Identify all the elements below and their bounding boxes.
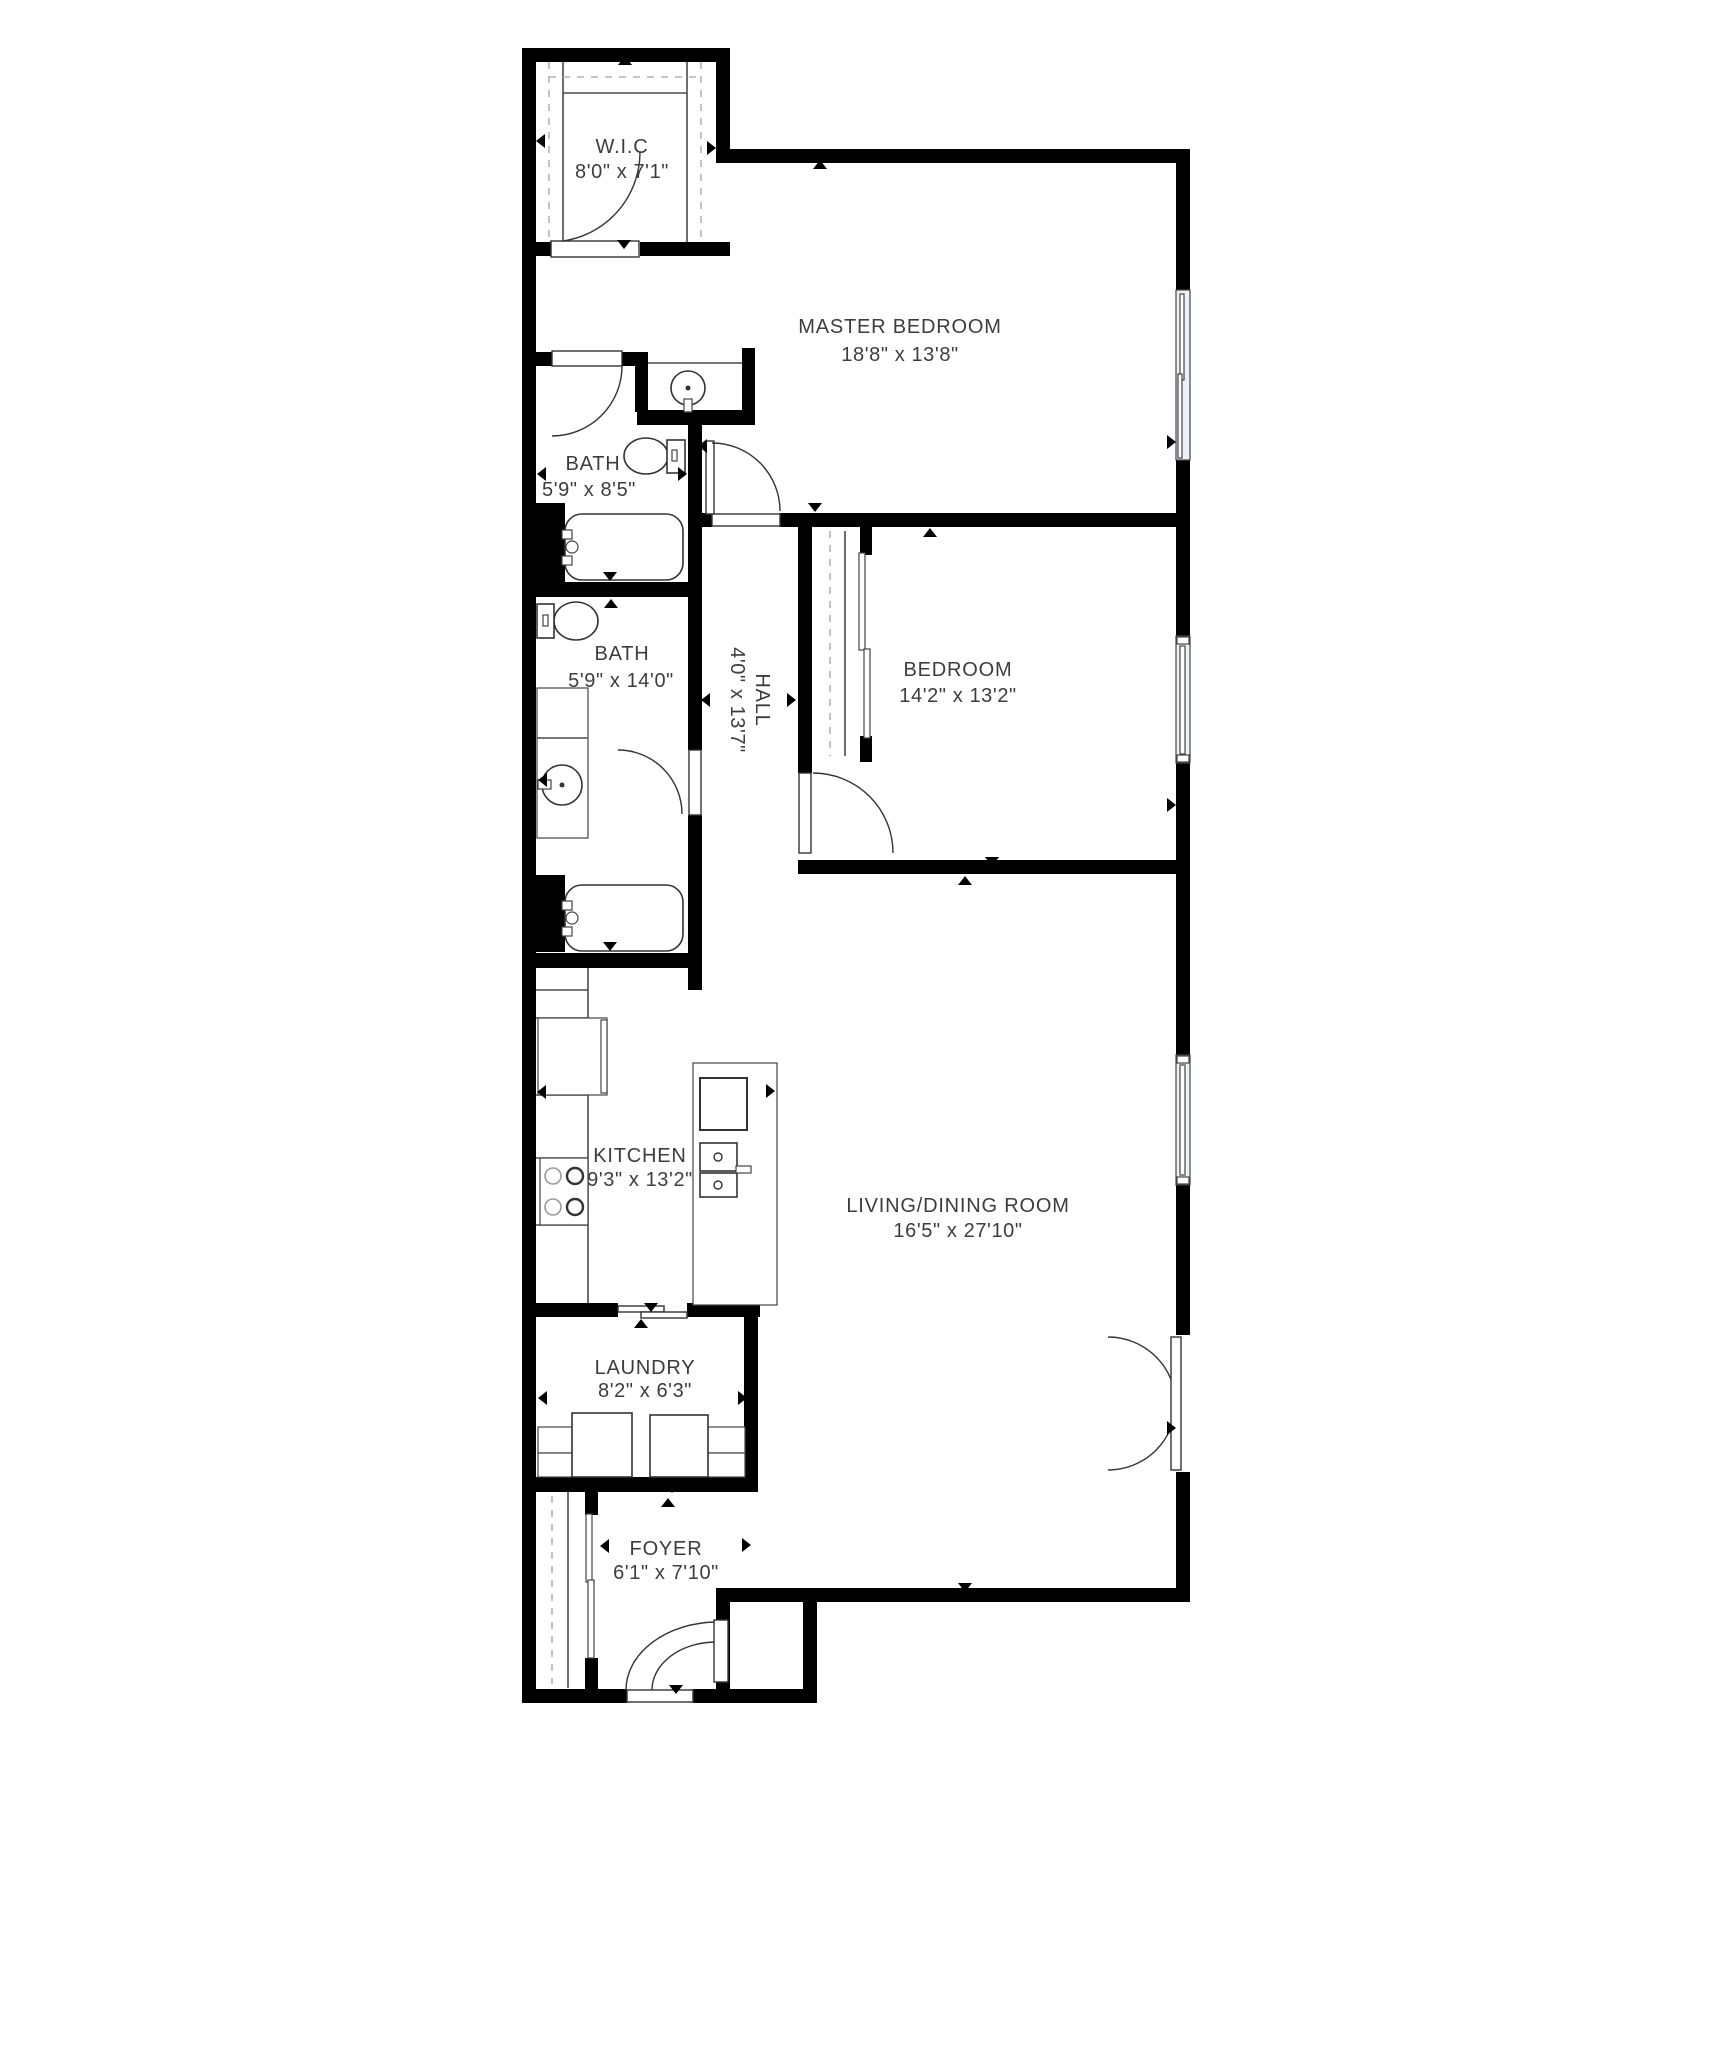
label-foyer-dims: 6'1" x 7'10" xyxy=(613,1562,719,1584)
label-living-name: LIVING/DINING ROOM xyxy=(846,1195,1069,1217)
window-living xyxy=(1176,1055,1190,1185)
bath1-door-icon xyxy=(552,351,622,436)
bath2-door-icon xyxy=(618,750,701,815)
window-bedroom xyxy=(1176,636,1190,763)
label-foyer-name: FOYER xyxy=(630,1538,703,1560)
bathtub-icon xyxy=(562,514,683,580)
label-bath1-name: BATH xyxy=(565,453,620,475)
label-laundry-dims: 8'2" x 6'3" xyxy=(598,1380,692,1402)
label-master-dims: 18'8" x 13'8" xyxy=(841,344,959,366)
label-laundry-name: LAUNDRY xyxy=(595,1357,696,1379)
dryer-icon xyxy=(650,1415,708,1477)
label-hall-name: HALL xyxy=(751,673,773,726)
master-door-icon xyxy=(706,441,780,526)
label-bath2-dims: 5'9" x 14'0" xyxy=(568,670,674,692)
label-kitchen-name: KITCHEN xyxy=(593,1145,686,1167)
label-wic-dims: 8'0" x 7'1" xyxy=(575,161,669,183)
window-master xyxy=(1176,290,1190,460)
label-bath1-dims: 5'9" x 8'5" xyxy=(542,479,636,501)
toilet-icon xyxy=(537,602,598,640)
label-bath2-name: BATH xyxy=(594,643,649,665)
label-hall-dims: 4'0" x 13'7" xyxy=(726,647,748,753)
bedroom-closet xyxy=(830,531,870,756)
fridge-icon xyxy=(538,1018,607,1095)
label-bedroom-name: BEDROOM xyxy=(904,659,1013,681)
floor-plan-drawing: W.I.C 8'0" x 7'1" MASTER BEDROOM 18'8" x… xyxy=(0,0,1717,2048)
bathtub-icon xyxy=(562,885,683,951)
french-door-icon xyxy=(1108,1337,1181,1470)
laundry-counter xyxy=(538,1427,745,1477)
vanity-sink-icon xyxy=(537,688,588,838)
pedestal-sink-icon xyxy=(648,363,742,412)
floor-plan-page: W.I.C 8'0" x 7'1" MASTER BEDROOM 18'8" x… xyxy=(0,0,1717,2048)
foyer-closet xyxy=(552,1492,594,1688)
kitchen-island xyxy=(693,1063,777,1305)
bedroom-door-icon xyxy=(799,773,893,853)
label-master-name: MASTER BEDROOM xyxy=(798,316,1001,338)
label-kitchen-dims: 9'3" x 13'2" xyxy=(587,1169,693,1191)
label-living-dims: 16'5" x 27'10" xyxy=(893,1220,1022,1242)
label-wic-name: W.I.C xyxy=(596,136,649,158)
label-bedroom-dims: 14'2" x 13'2" xyxy=(899,685,1017,707)
stove-icon xyxy=(540,1158,588,1225)
toilet-icon xyxy=(624,438,685,474)
label-hall: HALL 4'0" x 13'7" xyxy=(726,647,773,753)
washer-icon xyxy=(572,1413,632,1477)
